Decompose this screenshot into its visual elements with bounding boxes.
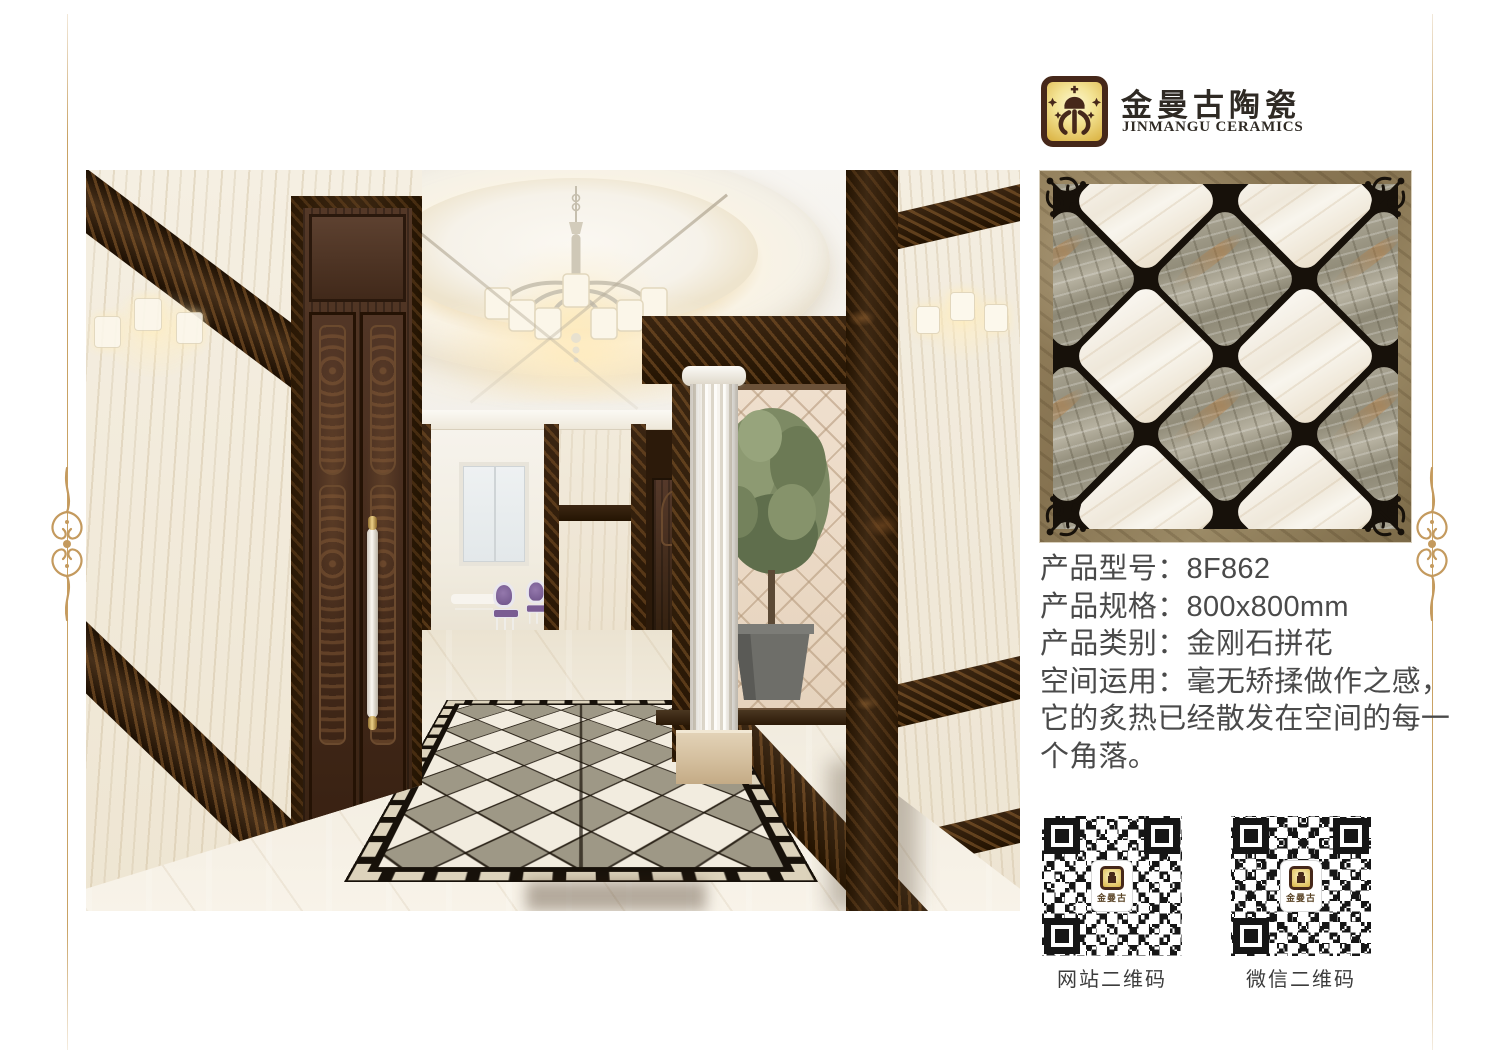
product-specs: 产品型号：8F862 产品规格：800x800mm 产品类别：金刚石拼花 空间运… — [1040, 551, 1460, 776]
wechat-qr-label: 微信二维码 — [1227, 963, 1375, 992]
tile-pattern-field — [1053, 184, 1398, 529]
marble-band — [880, 180, 1020, 251]
right-wall — [894, 170, 1020, 911]
spec-model: 产品型号：8F862 — [1040, 551, 1460, 589]
marble-pilaster — [544, 424, 559, 656]
product-tile-image — [1040, 171, 1411, 542]
qr-finder-icon — [1144, 818, 1180, 854]
qr-finder-icon — [1233, 918, 1269, 954]
corner-scroll-icon — [1041, 485, 1097, 541]
spec-size-value: 800x800mm — [1187, 591, 1349, 623]
crown-emblem-icon — [1047, 82, 1102, 141]
marble-band — [879, 653, 1020, 730]
floor-reflection — [526, 881, 706, 911]
spec-category-value: 金刚石拼花 — [1187, 628, 1334, 660]
qr-finder-icon — [1233, 818, 1269, 854]
colon: ： — [1157, 628, 1186, 660]
colon: ： — [1157, 666, 1186, 698]
qr-logo-chip: 金曼古 — [1091, 860, 1133, 912]
wooden-door — [303, 208, 412, 893]
qr-finder-icon — [1044, 918, 1080, 954]
corner-scroll-icon — [1354, 172, 1410, 228]
corner-scroll-icon — [1354, 485, 1410, 541]
hallway-photo — [86, 170, 1020, 911]
marble-lintel — [642, 316, 860, 384]
website-qr-code: 金曼古 — [1038, 812, 1186, 960]
brand-name-english: JINMANGU CERAMICS — [1122, 119, 1304, 136]
column-base — [676, 730, 752, 784]
website-qr-label: 网站二维码 — [1038, 963, 1186, 992]
left-wall — [86, 170, 422, 911]
wall-sconce-icon — [912, 278, 1012, 378]
colon: ： — [1157, 553, 1186, 585]
left-edge-line — [67, 14, 68, 1050]
marble-band — [559, 505, 631, 521]
spec-category: 产品类别：金刚石拼花 — [1040, 626, 1460, 664]
dining-opening — [431, 430, 544, 646]
spec-usage: 空间运用：毫无矫揉做作之感，它的炙热已经散发在空间的每一个角落。 — [1040, 664, 1460, 777]
flourish-left-icon — [45, 466, 90, 622]
qr-finder-icon — [1333, 818, 1369, 854]
qr-logo-chip: 金曼古 — [1280, 860, 1322, 912]
spec-model-value: 8F862 — [1187, 553, 1271, 585]
wall-sconce-icon — [86, 282, 226, 397]
qr-finder-icon — [1044, 818, 1080, 854]
colon: ： — [1157, 591, 1186, 623]
dining-table — [451, 594, 497, 604]
wechat-qr-code: 金曼古 — [1227, 812, 1375, 960]
marble-pilaster — [631, 424, 646, 656]
right-edge-line — [1432, 14, 1433, 1050]
emperador-pillar — [846, 170, 898, 911]
mini-logo-icon — [1289, 866, 1313, 890]
catalog-page: 金曼古陶瓷 JINMANGU CERAMICS — [0, 0, 1500, 1063]
mini-logo-icon — [1100, 866, 1124, 890]
white-column — [690, 384, 738, 736]
wechat-qr-block: 金曼古 微信二维码 — [1227, 812, 1375, 960]
brand-logo-icon — [1041, 76, 1108, 147]
website-qr-block: 金曼古 网站二维码 — [1038, 812, 1186, 960]
column-capital — [682, 366, 746, 386]
door-handle — [367, 528, 378, 718]
spec-size: 产品规格：800x800mm — [1040, 589, 1460, 627]
window — [459, 462, 529, 566]
corner-scroll-icon — [1041, 172, 1097, 228]
purple-chair — [493, 582, 519, 622]
